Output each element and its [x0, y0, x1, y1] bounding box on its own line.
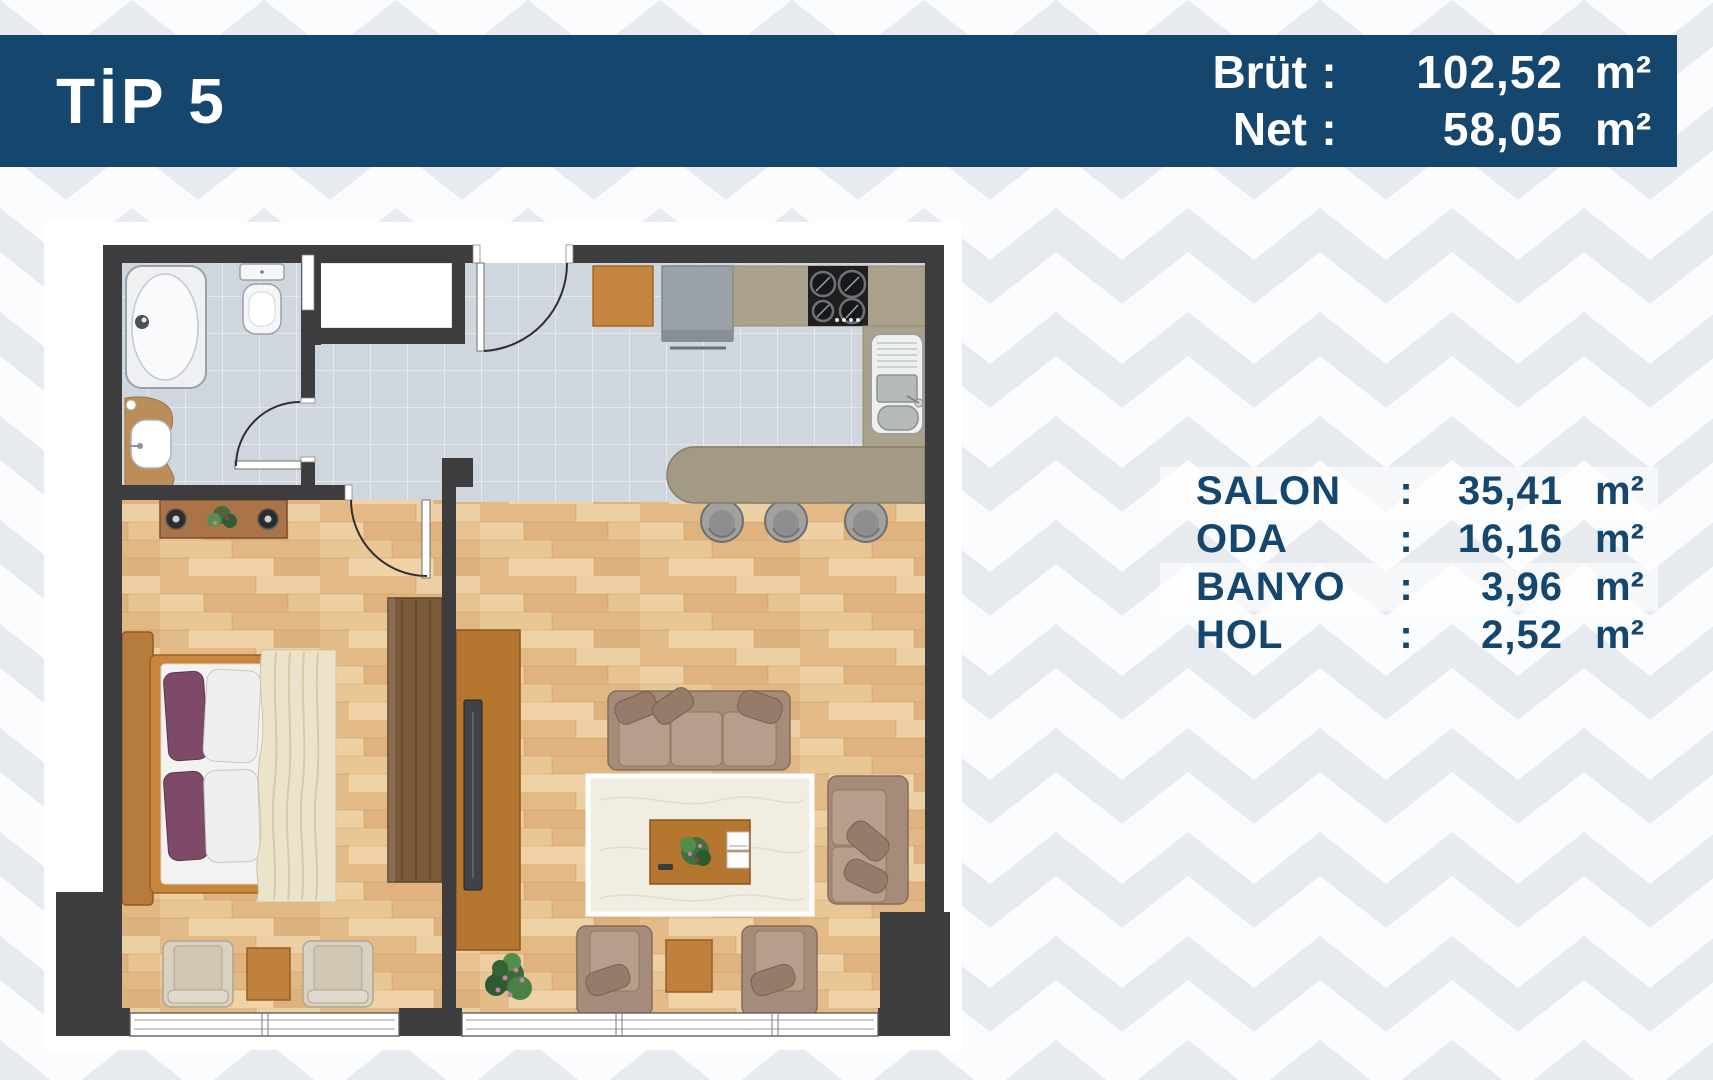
room-area: 2,52 [1428, 611, 1563, 659]
header-banner: TİP 5 Brüt : 102,52 m² Net : 58,05 m² [0, 35, 1677, 167]
area-row-banyo: BANYO : 3,96 m² [1160, 563, 1658, 611]
net-label: Net [1137, 101, 1307, 158]
separator: : [1384, 611, 1428, 659]
area-unit: m² [1563, 611, 1658, 659]
toilet [240, 264, 284, 334]
room-area: 35,41 [1428, 467, 1563, 515]
room-name: SALON [1160, 467, 1384, 515]
dresser [160, 500, 287, 538]
plan-type-title: TİP 5 [56, 35, 228, 167]
net-unit: m² [1563, 101, 1655, 158]
tv-unit [456, 630, 520, 950]
brut-stat-row: Brüt : 102,52 m² [1137, 44, 1655, 101]
kitchen-sink [871, 334, 923, 434]
area-unit: m² [1563, 563, 1658, 611]
room-name: BANYO [1160, 563, 1384, 611]
brut-label: Brüt [1137, 44, 1307, 101]
coffee-table [650, 820, 750, 884]
room-name: ODA [1160, 515, 1384, 563]
brut-value: 102,52 [1351, 44, 1563, 101]
vanity-sink [125, 397, 174, 487]
windows [130, 1013, 878, 1036]
bathtub [126, 266, 206, 388]
bar-stool [765, 500, 807, 542]
kitchen-cabinet [593, 266, 653, 326]
brut-unit: m² [1563, 44, 1655, 101]
room-area: 16,16 [1428, 515, 1563, 563]
balcony-block-left [56, 892, 122, 1036]
bar-stool [701, 500, 743, 542]
net-stat-row: Net : 58,05 m² [1137, 101, 1655, 158]
area-row-oda: ODA : 16,16 m² [1160, 515, 1658, 563]
bar-stool [845, 500, 887, 542]
bar-stools [701, 500, 887, 542]
salon-window [462, 1013, 878, 1036]
shaft-void [318, 263, 452, 328]
salon-side-table [666, 940, 712, 992]
column-block-right [880, 912, 950, 1036]
sofa [608, 684, 790, 770]
area-row-hol: HOL : 2,52 m² [1160, 611, 1658, 659]
salon-armchair [577, 926, 652, 1016]
separator: : [1384, 467, 1428, 515]
bedroom-window [130, 1013, 399, 1036]
cooktop [808, 266, 868, 326]
wardrobe [388, 598, 442, 882]
breakfast-bar [667, 447, 925, 503]
separator: : [1384, 515, 1428, 563]
area-row-salon: SALON : 35,41 m² [1160, 467, 1658, 515]
separator: : [1384, 563, 1428, 611]
room-name: HOL [1160, 611, 1384, 659]
bed-blanket [256, 650, 336, 902]
headboard [122, 632, 153, 905]
bedroom-side-table [247, 948, 290, 1000]
area-table: SALON : 35,41 m² ODA : 16,16 m² BANYO : … [1160, 467, 1658, 659]
net-value: 58,05 [1351, 101, 1563, 158]
loveseat [828, 776, 908, 904]
salon-armchair [742, 926, 817, 1016]
area-unit: m² [1563, 515, 1658, 563]
bed [122, 632, 336, 905]
fridge [662, 266, 733, 348]
header-stats: Brüt : 102,52 m² Net : 58,05 m² [1137, 44, 1655, 158]
area-unit: m² [1563, 467, 1658, 515]
brut-separator: : [1307, 44, 1351, 101]
floor-plan [44, 222, 962, 1050]
room-area: 3,96 [1428, 563, 1563, 611]
bedroom-armchair [163, 941, 233, 1007]
bedroom-armchair [303, 941, 373, 1007]
net-separator: : [1307, 101, 1351, 158]
